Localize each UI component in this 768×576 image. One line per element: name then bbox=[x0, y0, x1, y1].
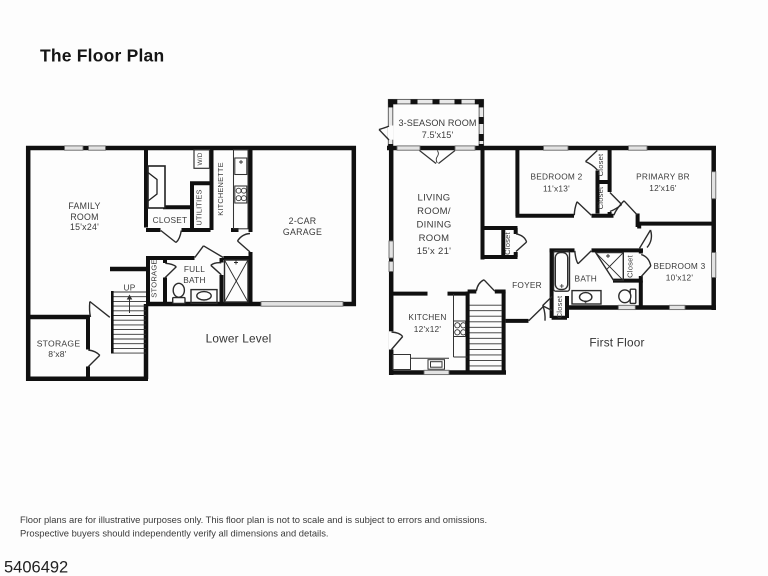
svg-text:First Floor: First Floor bbox=[589, 336, 644, 350]
svg-text:STORAGE: STORAGE bbox=[150, 259, 159, 297]
svg-text:Floor plans are for illustrati: Floor plans are for illustrative purpose… bbox=[20, 514, 487, 525]
svg-text:CLOSET: CLOSET bbox=[153, 215, 188, 225]
svg-text:ROOM/: ROOM/ bbox=[417, 206, 451, 217]
svg-text:GARAGE: GARAGE bbox=[283, 227, 322, 237]
svg-text:Closet: Closet bbox=[503, 231, 512, 254]
svg-text:15'x 21': 15'x 21' bbox=[417, 246, 452, 257]
svg-text:2-CAR: 2-CAR bbox=[289, 216, 317, 226]
svg-text:UTILITIES: UTILITIES bbox=[195, 189, 204, 225]
svg-text:PRIMARY BR: PRIMARY BR bbox=[636, 172, 690, 182]
svg-text:DINING: DINING bbox=[416, 219, 451, 230]
svg-text:8'x8': 8'x8' bbox=[48, 349, 66, 359]
svg-text:10'x12': 10'x12' bbox=[666, 272, 694, 282]
svg-text:Lower Level: Lower Level bbox=[206, 332, 272, 346]
svg-text:The Floor Plan: The Floor Plan bbox=[40, 46, 164, 66]
svg-text:BATH: BATH bbox=[183, 275, 206, 285]
svg-text:FAMILY: FAMILY bbox=[68, 201, 100, 211]
svg-text:5406492: 5406492 bbox=[4, 559, 68, 576]
svg-text:STORAGE: STORAGE bbox=[37, 338, 81, 348]
svg-text:ROOM: ROOM bbox=[419, 233, 450, 244]
svg-text:3-SEASON ROOM: 3-SEASON ROOM bbox=[398, 118, 476, 128]
svg-text:ROOM: ROOM bbox=[70, 212, 98, 222]
svg-text:BATH: BATH bbox=[575, 274, 598, 284]
svg-text:KITCHEN: KITCHEN bbox=[408, 312, 446, 322]
svg-text:11'x13': 11'x13' bbox=[543, 183, 570, 193]
svg-text:7.5'x15': 7.5'x15' bbox=[422, 130, 454, 140]
svg-text:W/D: W/D bbox=[197, 152, 204, 165]
svg-text:LIVING: LIVING bbox=[418, 192, 451, 203]
svg-text:Closet: Closet bbox=[596, 186, 605, 209]
svg-text:Closet: Closet bbox=[555, 295, 564, 318]
svg-text:KITCHENETTE: KITCHENETTE bbox=[216, 162, 225, 216]
svg-text:Prospective buyers should inde: Prospective buyers should independently … bbox=[20, 528, 329, 539]
svg-text:BEDROOM 2: BEDROOM 2 bbox=[530, 172, 582, 182]
svg-text:12'x16': 12'x16' bbox=[649, 183, 677, 193]
svg-text:BEDROOM 3: BEDROOM 3 bbox=[653, 261, 705, 271]
svg-text:12'x12': 12'x12' bbox=[414, 324, 442, 334]
svg-text:FOYER: FOYER bbox=[512, 280, 542, 290]
svg-text:UP: UP bbox=[123, 283, 135, 293]
svg-text:FULL: FULL bbox=[184, 264, 205, 274]
svg-text:15'x24': 15'x24' bbox=[70, 222, 99, 232]
svg-text:Closet: Closet bbox=[596, 153, 605, 176]
svg-text:Closet: Closet bbox=[625, 254, 634, 277]
